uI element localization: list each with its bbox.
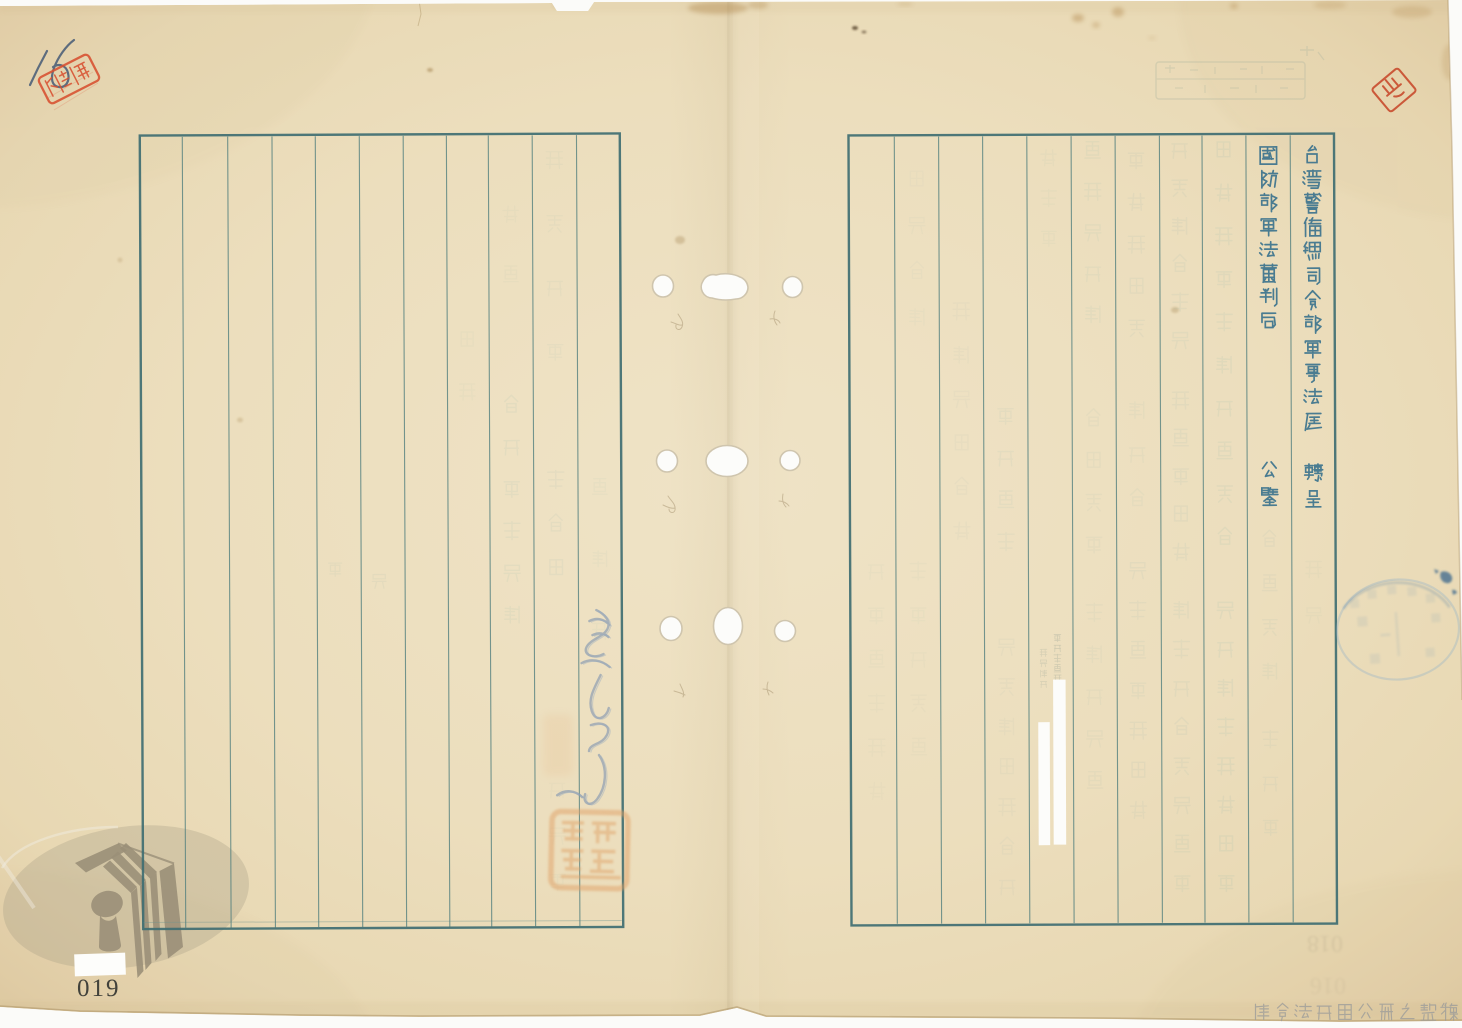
svg-text:018: 018 [1307,930,1343,956]
svg-text:016: 016 [1310,972,1346,998]
svg-text:019: 019 [77,975,121,1002]
